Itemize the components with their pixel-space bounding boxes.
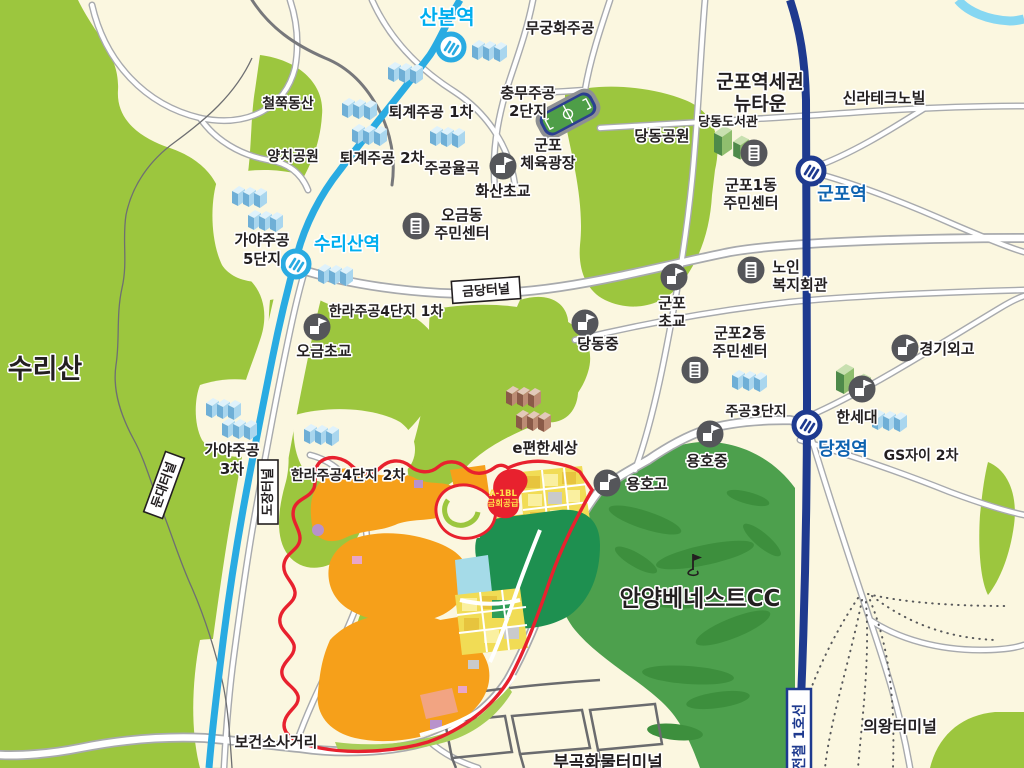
gaya3-label-1: 가야주공 <box>204 441 259 459</box>
geumdang-tunnel-label: 금당터널 <box>462 281 511 300</box>
newtown-label-1: 군포역세권 <box>716 71 803 93</box>
ogeum-center-label-2: 주민센터 <box>434 224 489 242</box>
gunpo1-center-icon <box>741 140 768 167</box>
yongho-high-label: 용호고 <box>626 475 668 493</box>
halla1-apartments-icon <box>318 264 353 286</box>
halla1-label: 한라주공4단지 1차 <box>329 303 444 320</box>
chungmu-apartments-icon <box>472 40 507 62</box>
surisan-station-marker <box>283 251 309 277</box>
epyeonhan-apartments-icon-row1 <box>506 386 541 408</box>
epyeonhan-apartments-icon-row2 <box>516 410 551 432</box>
a1bl-label-line1: A-1BL <box>489 489 517 499</box>
toegye2-apartments-icon-row2 <box>352 124 387 146</box>
ogeum-center-icon <box>403 213 430 240</box>
gaya5-label-2: 5단지 <box>243 250 281 268</box>
gyeonggi-foreign-label: 경기외고 <box>919 340 974 358</box>
gaya3-apartments-icon-row1 <box>206 398 241 420</box>
gunpo1-center-label-1: 군포1동 <box>725 176 777 194</box>
chungmu-label-1: 충무주공 <box>500 84 555 102</box>
gunpo-station-marker <box>798 158 824 184</box>
toegye2-apartments-icon-row1 <box>342 98 377 120</box>
jugong3-apartments-icon <box>732 370 767 392</box>
dangjeong-station-marker <box>794 412 820 438</box>
bugok-terminal-label: 부곡화물터미널 <box>553 753 662 768</box>
line1-name-sign: 전철 1호선 <box>787 689 811 768</box>
dangdong-middle-label: 당동중 <box>577 335 619 353</box>
dangdong-middle-school-icon <box>572 310 599 337</box>
dojang-tunnel-label: 도장터널 <box>260 468 276 516</box>
chungmu-label-2: 2단지 <box>509 102 547 120</box>
gyeonggi-foreign-school-icon <box>892 335 919 362</box>
surisan-station-label: 수리산역 <box>314 234 380 255</box>
gsxi-label: GS자이 2차 <box>884 447 959 464</box>
yulgok-apartments-icon <box>430 126 465 148</box>
dev-yellow-grid-s <box>455 588 528 655</box>
silla-label: 신라테크노빌 <box>843 89 926 107</box>
uiwang-terminal-label: 의왕터미널 <box>863 717 937 736</box>
surisan-mountain-label: 수리산 <box>8 354 83 385</box>
ogeum-center-label-1: 오금동 <box>441 206 483 224</box>
sports-label-2: 체육광장 <box>520 154 575 172</box>
newtown-label-2: 뉴타운 <box>734 93 786 115</box>
hwasan-school-icon <box>490 153 517 180</box>
toegye1-label: 퇴계주공 1차 <box>389 103 474 121</box>
gunpo2-center-icon <box>682 357 709 384</box>
ogeum-elem-label: 오금초교 <box>296 342 351 360</box>
gunpo-elem-label-1: 군포 <box>658 294 686 312</box>
dev-a1bl-label: A-1BL 금회공급 <box>487 489 518 509</box>
hansei-univ-icon <box>849 376 876 403</box>
gaya3-label-2: 3차 <box>220 460 244 478</box>
bogeonso-label: 보건소사거리 <box>235 733 318 751</box>
map-canvas: A-1BL 금회공급 금당터널 도장터널 둔대터널 전철 1호선 <box>0 0 1024 768</box>
gaya5-apartments-icon-row2 <box>248 210 283 232</box>
sports-label-1: 군포 <box>534 136 562 154</box>
dangjeong-station-label: 당정역 <box>818 439 868 460</box>
dev-school-site <box>455 555 492 597</box>
senior-label-1: 노인 <box>772 258 800 276</box>
yongho-high-school-icon <box>594 470 621 497</box>
senior-label-2: 복지회관 <box>772 276 827 294</box>
jugong3-label: 주공3단지 <box>725 403 786 420</box>
line1-name-label: 전철 1호선 <box>791 704 808 768</box>
sanbon-station-label: 산본역 <box>419 5 474 29</box>
yangchi-label: 양치공원 <box>267 149 319 165</box>
toegye1-apartments-icon <box>388 62 423 84</box>
yongho-middle-school-icon <box>697 421 724 448</box>
halla2-label: 한라주공4단지 2차 <box>291 467 406 484</box>
a1bl-label-line2: 금회공급 <box>487 498 518 509</box>
toegye2-label: 퇴계주공 2차 <box>340 149 425 167</box>
cheoljjuk-label: 철쭉동산 <box>262 95 314 112</box>
gaya5-apartments-icon-row1 <box>232 186 267 208</box>
ogeum-school-icon <box>304 314 331 341</box>
gunpo2-center-label-1: 군포2동 <box>714 324 766 342</box>
dojang-tunnel-sign: 도장터널 <box>258 460 278 524</box>
gunpo2-center-label-2: 주민센터 <box>712 342 767 360</box>
hansei-label: 한세대 <box>836 408 877 426</box>
halla2-apartments-icon <box>304 424 339 446</box>
gunpo1-center-label-2: 주민센터 <box>723 194 778 212</box>
gaya5-label-1: 가야주공 <box>234 231 289 249</box>
yulgok-label: 주공율곡 <box>424 159 479 177</box>
gunpo-elem-label-2: 초교 <box>658 312 686 330</box>
dangdong-park-label: 당동공원 <box>634 127 689 145</box>
dangdong-library-label: 당동도서관 <box>698 114 758 130</box>
geumdang-tunnel-sign: 금당터널 <box>451 277 520 304</box>
gunpo-elem-school-icon <box>661 264 688 291</box>
hwasan-label: 화산초교 <box>475 182 530 200</box>
gunpo-station-label: 군포역 <box>817 184 867 205</box>
senior-welfare-icon <box>738 257 765 284</box>
yongho-middle-label: 용호중 <box>686 452 728 470</box>
sanbon-station-marker <box>438 34 464 60</box>
anyang-benest-label: 안양베네스트CC <box>620 586 781 612</box>
gaya3-apartments-icon-row2 <box>222 418 257 440</box>
area-map: A-1BL 금회공급 금당터널 도장터널 둔대터널 전철 1호선 <box>0 0 1024 768</box>
mugunghwa-label: 무궁화주공 <box>525 19 594 37</box>
epyeonhan-label: e편한세상 <box>512 439 578 457</box>
